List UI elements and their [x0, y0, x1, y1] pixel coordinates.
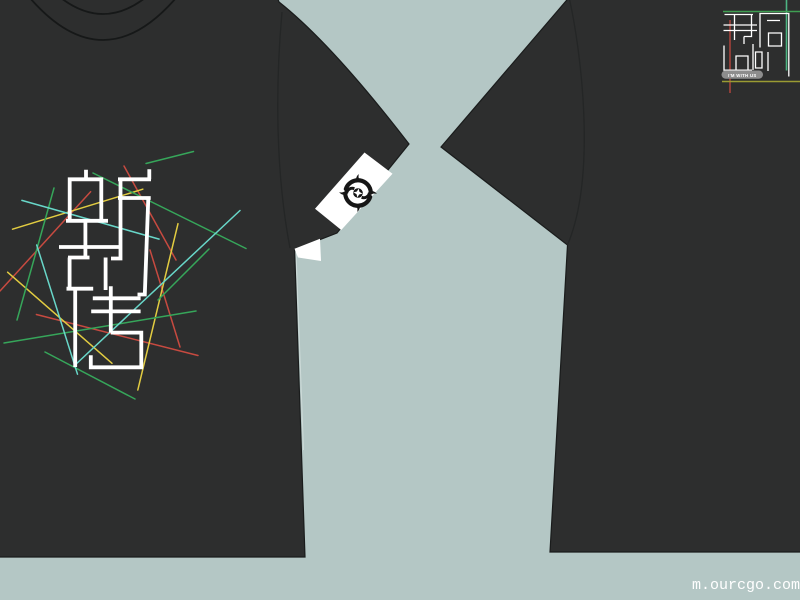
- svg-text:m.ourcgo.com: m.ourcgo.com: [692, 577, 800, 594]
- svg-text:I'M WITH US: I'M WITH US: [728, 73, 756, 78]
